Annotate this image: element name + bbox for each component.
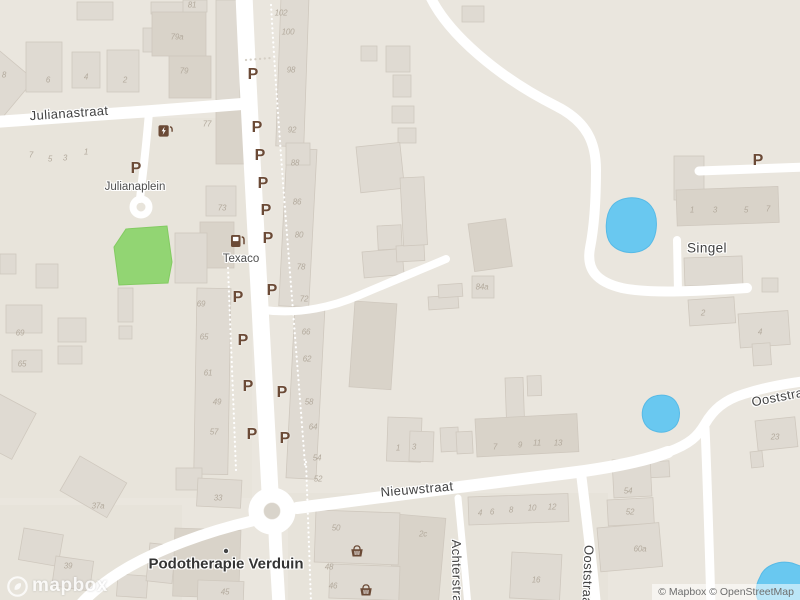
house-number: 3 (63, 154, 67, 163)
fuel-icon (231, 234, 246, 249)
ev-charging-icon (158, 124, 174, 138)
house-number: 23 (771, 433, 780, 442)
house-number: 84a (476, 283, 489, 292)
house-number: 2c (419, 530, 427, 539)
house-number: 2 (123, 76, 127, 85)
house-number: 7 (29, 151, 33, 160)
house-number: 54 (313, 454, 322, 463)
house-number: 6 (46, 76, 50, 85)
house-number: 8 (509, 506, 513, 515)
house-number: 73 (218, 204, 227, 213)
parking-marker: P (261, 202, 272, 220)
house-number: 6 (490, 508, 494, 517)
map-label-julianaplein: Julianaplein (105, 181, 166, 193)
house-number: 72 (300, 295, 309, 304)
house-number: 100 (282, 28, 295, 37)
parking-marker: P (280, 430, 291, 448)
parking-marker: P (252, 119, 263, 137)
attribution-bar[interactable]: © Mapbox © OpenStreetMap (652, 584, 800, 600)
house-number: 58 (305, 398, 314, 407)
house-number: 7 (766, 205, 770, 214)
house-number: 49 (213, 398, 222, 407)
house-number: 57 (210, 428, 219, 437)
parking-marker: P (131, 160, 142, 178)
house-number: 5 (48, 155, 52, 164)
house-number: 64 (309, 423, 318, 432)
house-number: 81 (188, 1, 197, 10)
house-number: 69 (16, 329, 25, 338)
house-number: 52 (314, 475, 323, 484)
park-area (114, 226, 172, 285)
road-east-branch (699, 167, 800, 171)
house-number: 4 (84, 73, 88, 82)
house-number: 54 (624, 487, 633, 496)
house-number: 1 (690, 206, 694, 215)
house-number: 79a (171, 33, 184, 42)
parking-marker: P (277, 384, 288, 402)
map-canvas[interactable]: JulianastraatJulianapleinTexacoSingelNie… (0, 0, 800, 600)
parking-marker: P (233, 289, 244, 307)
house-number: 2 (701, 309, 705, 318)
pond (642, 395, 679, 432)
mapbox-logo-icon (7, 576, 28, 597)
road-singel-connector (677, 240, 678, 291)
parking-marker: P (247, 426, 258, 444)
house-number: 48 (325, 563, 334, 572)
house-number: 102 (275, 9, 288, 18)
parking-marker: P (243, 378, 254, 396)
house-number: 16 (532, 576, 541, 585)
parking-marker: P (267, 282, 278, 300)
basket-icon (350, 545, 365, 558)
parking-marker: P (255, 147, 266, 165)
house-number: 86 (293, 198, 302, 207)
house-number: 78 (297, 263, 306, 272)
roundabout (256, 495, 288, 527)
pond (606, 198, 656, 253)
house-number: 46 (329, 582, 338, 591)
house-number: 11 (533, 439, 541, 448)
house-number: 98 (287, 66, 296, 75)
poi-dot (222, 547, 230, 555)
mapbox-logo-text: mapbox (32, 575, 108, 597)
house-number: 1 (84, 148, 88, 157)
house-number: 37a (92, 502, 105, 511)
parking-marker: P (248, 66, 259, 84)
house-number: 13 (554, 439, 563, 448)
house-number: 52 (626, 508, 635, 517)
house-number: 45 (221, 588, 230, 597)
house-number: 62 (303, 355, 312, 364)
attribution-text[interactable]: © Mapbox © OpenStreetMap (658, 586, 794, 598)
parking-marker: P (753, 152, 764, 170)
house-number: 92 (288, 126, 297, 135)
house-number: 69 (197, 300, 206, 309)
house-number: 1 (396, 444, 400, 453)
parking-marker: P (258, 175, 269, 193)
house-number: 65 (18, 360, 27, 369)
mapbox-logo[interactable]: mapbox (7, 575, 108, 597)
house-number: 66 (302, 328, 311, 337)
parking-marker: P (263, 230, 274, 248)
house-number: 9 (518, 441, 522, 450)
house-number: 5 (744, 206, 748, 215)
map-label-singel: Singel (687, 241, 727, 256)
map-label-texaco: Texaco (223, 253, 259, 265)
road-south-east (705, 428, 711, 600)
house-number: 33 (214, 494, 223, 503)
house-number: 4 (758, 328, 762, 337)
house-number: 65 (200, 333, 209, 342)
basket-icon (359, 584, 374, 597)
house-number: 80 (295, 231, 304, 240)
house-number: 61 (204, 369, 213, 378)
house-number: 50 (332, 524, 341, 533)
house-number: 39 (64, 562, 73, 571)
map-label-achterstraat: Achterstraat (449, 539, 465, 600)
house-number: 12 (548, 503, 557, 512)
house-number: 10 (528, 504, 537, 513)
map-base-layer (0, 0, 800, 600)
map-label-podotherapie-verduin: Podotherapie Verduin (148, 556, 303, 573)
map-label-ooststraat: Ooststraat (579, 545, 596, 600)
house-number: 8 (2, 71, 6, 80)
house-number: 3 (713, 206, 717, 215)
house-number: 3 (412, 443, 416, 452)
house-number: 88 (291, 159, 300, 168)
house-number: 4 (478, 509, 482, 518)
house-number: 79 (180, 67, 189, 76)
house-number: 7 (493, 443, 497, 452)
house-number: 77 (203, 120, 212, 129)
house-number: 60a (634, 545, 647, 554)
parking-marker: P (238, 332, 249, 350)
